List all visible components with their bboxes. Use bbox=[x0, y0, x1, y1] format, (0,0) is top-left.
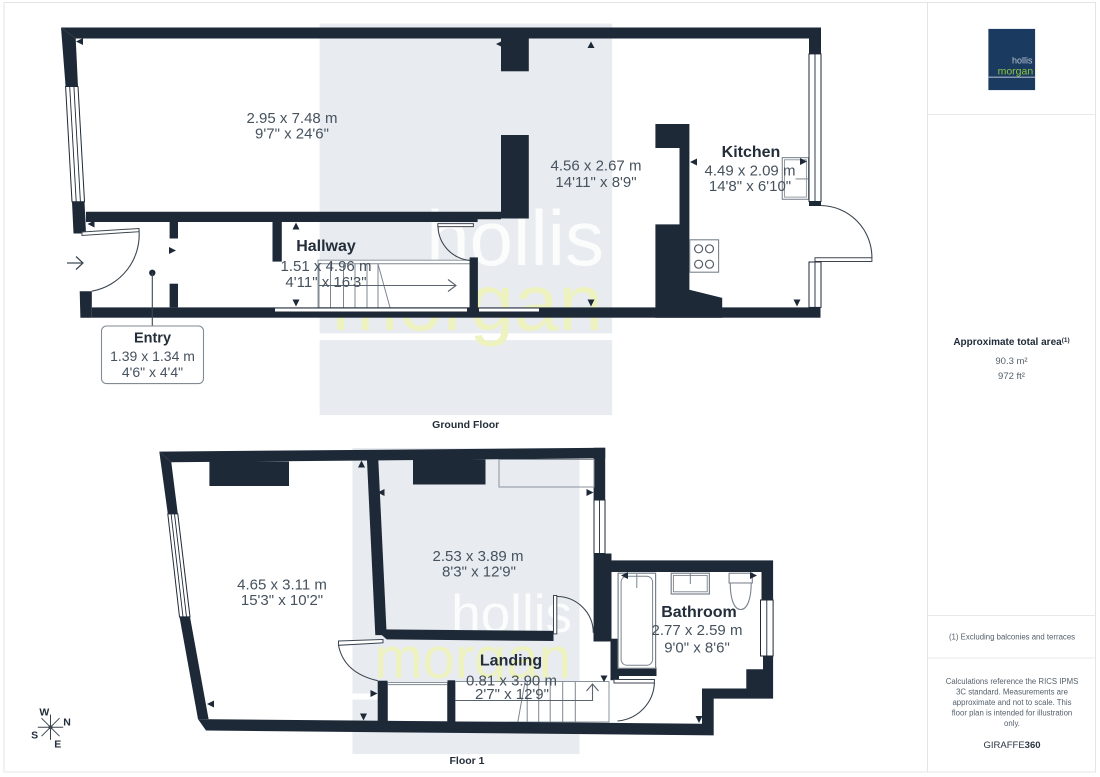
svg-text:4.49 x 2.09 m: 4.49 x 2.09 m bbox=[705, 163, 796, 180]
svg-text:Kitchen: Kitchen bbox=[722, 144, 781, 161]
svg-text:GIRAFFE360: GIRAFFE360 bbox=[983, 740, 1040, 751]
svg-text:only.: only. bbox=[1004, 719, 1020, 728]
svg-text:15'3" x 10'2": 15'3" x 10'2" bbox=[241, 592, 323, 609]
svg-text:1.39 x 1.34 m: 1.39 x 1.34 m bbox=[110, 348, 195, 364]
svg-text:2.77 x 2.59 m: 2.77 x 2.59 m bbox=[652, 622, 743, 639]
svg-text:8'3" x 12'9": 8'3" x 12'9" bbox=[442, 564, 516, 581]
svg-text:1.51 x 4.96 m: 1.51 x 4.96 m bbox=[281, 258, 372, 275]
svg-text:Bathroom: Bathroom bbox=[661, 604, 737, 621]
svg-text:4.56 x 2.67 m: 4.56 x 2.67 m bbox=[551, 158, 642, 175]
svg-text:14'8" x 6'10": 14'8" x 6'10" bbox=[709, 178, 791, 195]
svg-text:approximate and not to scale.: approximate and not to scale. This bbox=[952, 698, 1071, 707]
svg-text:Entry: Entry bbox=[134, 331, 171, 347]
svg-text:Floor 1: Floor 1 bbox=[449, 755, 484, 767]
svg-text:Calculations reference the RIC: Calculations reference the RICS IPMS bbox=[946, 677, 1079, 686]
svg-text:90.3 m²: 90.3 m² bbox=[995, 356, 1027, 367]
svg-text:Landing: Landing bbox=[480, 653, 542, 670]
svg-text:2.53 x 3.89 m: 2.53 x 3.89 m bbox=[433, 548, 524, 565]
svg-text:(1) Excluding balconies and te: (1) Excluding balconies and terraces bbox=[949, 633, 1075, 642]
svg-text:Hallway: Hallway bbox=[296, 238, 356, 255]
svg-text:3C standard. Measurements are: 3C standard. Measurements are bbox=[956, 688, 1068, 697]
svg-text:morgan: morgan bbox=[998, 66, 1034, 78]
svg-text:9'7" x 24'6": 9'7" x 24'6" bbox=[255, 126, 329, 143]
svg-text:2'7" x 12'9": 2'7" x 12'9" bbox=[475, 686, 549, 703]
svg-text:Ground Floor: Ground Floor bbox=[432, 419, 499, 431]
svg-text:E: E bbox=[54, 739, 61, 751]
svg-text:N: N bbox=[63, 717, 71, 729]
svg-text:Approximate total area(1): Approximate total area(1) bbox=[953, 337, 1069, 348]
svg-text:14'11" x 8'9": 14'11" x 8'9" bbox=[555, 174, 636, 191]
svg-text:hollis: hollis bbox=[1012, 56, 1033, 66]
svg-text:W: W bbox=[39, 707, 49, 719]
svg-text:972 ft²: 972 ft² bbox=[998, 371, 1025, 382]
svg-text:2.95 x 7.48 m: 2.95 x 7.48 m bbox=[247, 110, 338, 127]
svg-text:S: S bbox=[31, 730, 38, 742]
svg-text:4.65 x 3.11 m: 4.65 x 3.11 m bbox=[237, 577, 327, 594]
svg-text:9'0" x 8'6": 9'0" x 8'6" bbox=[664, 640, 730, 657]
svg-text:4'11" x 16'3": 4'11" x 16'3" bbox=[285, 274, 366, 291]
svg-text:4'6" x 4'4": 4'6" x 4'4" bbox=[122, 364, 183, 380]
svg-text:floor plan is intended for ill: floor plan is intended for illustration bbox=[952, 709, 1073, 718]
